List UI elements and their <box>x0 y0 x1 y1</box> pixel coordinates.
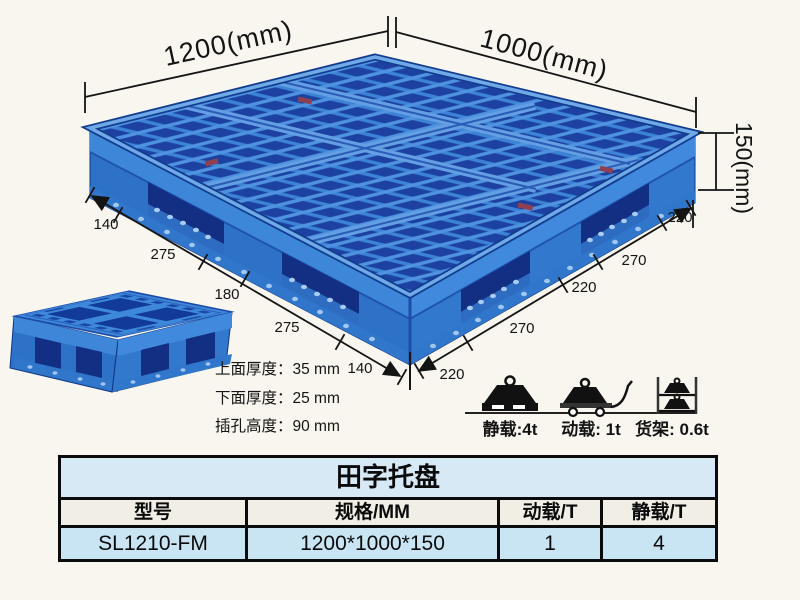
pallet-diagram: 1200(mm) 1000(mm) 150(mm) 140 275 180 27… <box>0 0 800 455</box>
model-cell: SL1210-FM <box>61 528 248 559</box>
dynamic-load-header-cell: 动载/T <box>500 500 603 525</box>
static-load-header-cell: 静载/T <box>603 500 715 525</box>
spec-cell: 1200*1000*150 <box>248 528 500 559</box>
dim-label-1000: 1000(mm) <box>477 23 611 86</box>
table-title: 田字托盘 <box>61 458 715 500</box>
dim-label-220-c: 220 <box>667 209 692 226</box>
dynamic-load-icon <box>560 379 632 416</box>
dim-label-220-b: 220 <box>571 279 596 296</box>
small-pallet <box>10 291 232 392</box>
dim-label-1200: 1200(mm) <box>161 15 295 72</box>
dim-label-270-a: 270 <box>509 320 534 337</box>
note-bottom-thickness: 下面厚度：25 mm <box>215 389 340 407</box>
static-load-label: 静载:4t <box>483 419 538 439</box>
dim-label-275-b: 275 <box>274 319 299 336</box>
static-load-icon <box>482 377 538 412</box>
model-header-cell: 型号 <box>61 500 248 525</box>
table-data-row: SL1210-FM 1200*1000*150 1 4 <box>61 528 715 559</box>
dim-label-275-a: 275 <box>150 246 175 263</box>
dim-label-150: 150(mm) <box>731 122 757 214</box>
table-header-row: 型号 规格/MM 动载/T 静载/T <box>61 500 715 528</box>
note-top-thickness: 上面厚度：35 mm <box>215 360 340 378</box>
dim-label-180: 180 <box>214 286 239 303</box>
pallet-spec-sheet: 1200(mm) 1000(mm) 150(mm) 140 275 180 27… <box>0 0 800 600</box>
dim-label-140-a: 140 <box>93 216 118 233</box>
dim-label-140-b: 140 <box>347 360 372 377</box>
dynamic-load-cell: 1 <box>500 528 603 559</box>
dim-label-270-b: 270 <box>621 252 646 269</box>
note-socket-height: 插孔高度：90 mm <box>215 417 340 435</box>
load-capacity-icons: 静载:4t 动载: 1t 货架: 0.6t <box>465 377 709 440</box>
static-load-cell: 4 <box>603 528 715 559</box>
dim-150 <box>698 133 734 190</box>
dynamic-load-label: 动载: 1t <box>561 419 621 439</box>
thickness-notes: 上面厚度：35 mm 下面厚度：25 mm 插孔高度：90 mm <box>215 360 340 435</box>
rack-load-label: 货架: 0.6t <box>635 419 709 439</box>
spec-header-cell: 规格/MM <box>248 500 500 525</box>
dim-label-220-a: 220 <box>439 366 464 383</box>
spec-table: 田字托盘 型号 规格/MM 动载/T 静载/T SL1210-FM 1200*1… <box>58 455 718 562</box>
rack-load-icon <box>658 377 696 414</box>
